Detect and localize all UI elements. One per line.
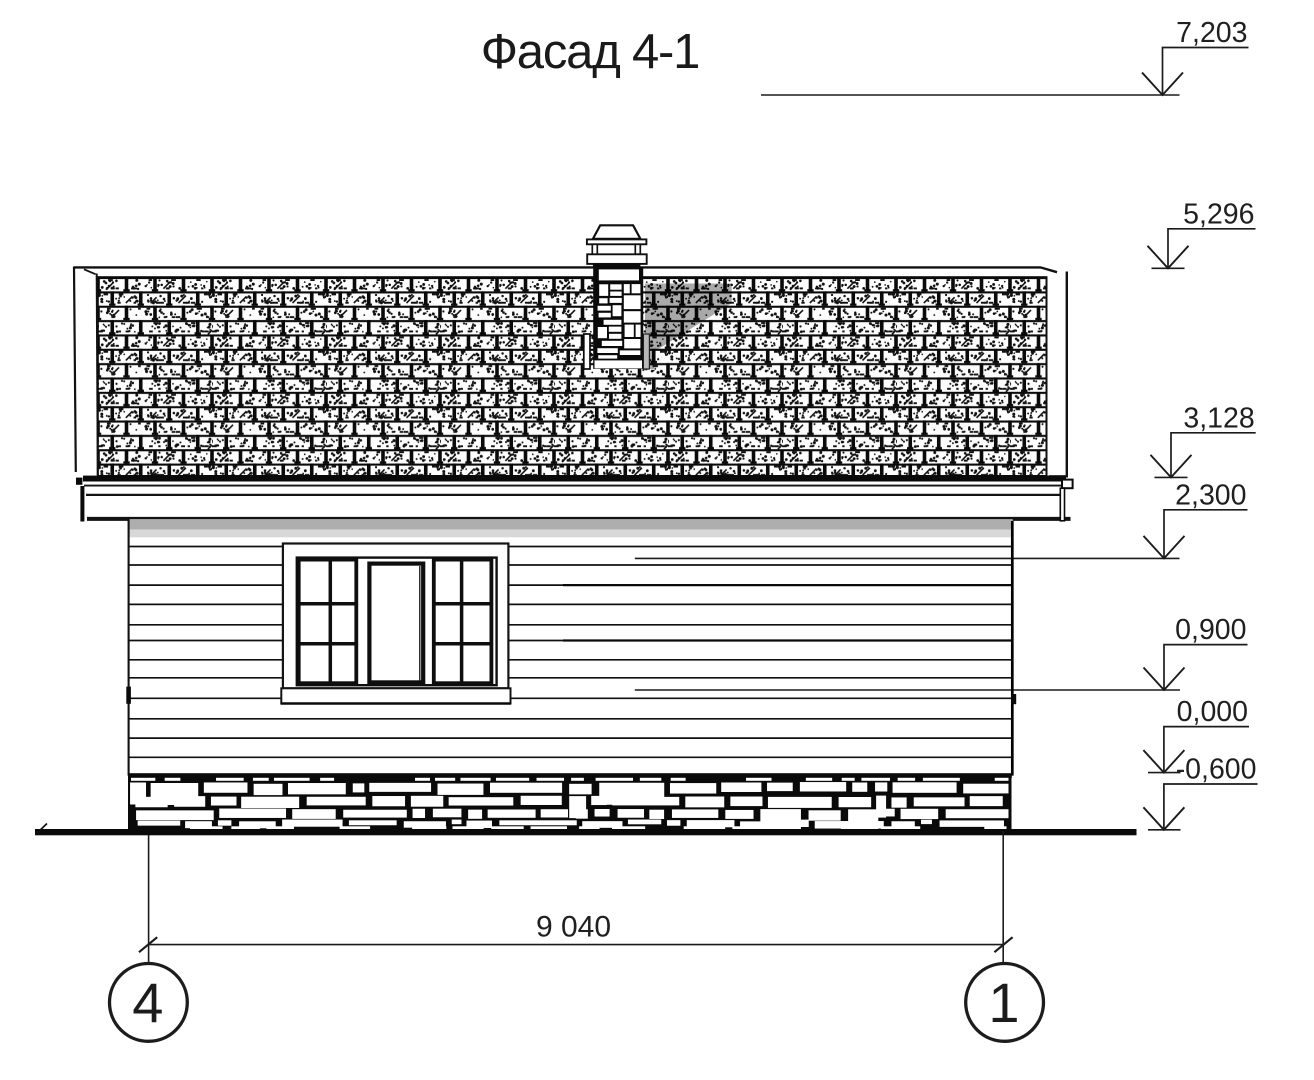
svg-text:3,128: 3,128 <box>1183 402 1254 434</box>
svg-text:-0,600: -0,600 <box>1176 754 1257 786</box>
svg-text:9 040: 9 040 <box>536 911 611 944</box>
svg-text:0,000: 0,000 <box>1177 696 1248 728</box>
svg-text:0,900: 0,900 <box>1175 614 1246 646</box>
svg-text:2,300: 2,300 <box>1175 479 1246 511</box>
svg-text:1: 1 <box>988 971 1019 1034</box>
svg-text:Фасад 4-1: Фасад 4-1 <box>481 25 699 79</box>
svg-text:7,203: 7,203 <box>1176 17 1247 49</box>
svg-text:5,296: 5,296 <box>1183 198 1254 230</box>
svg-text:4: 4 <box>132 971 163 1034</box>
